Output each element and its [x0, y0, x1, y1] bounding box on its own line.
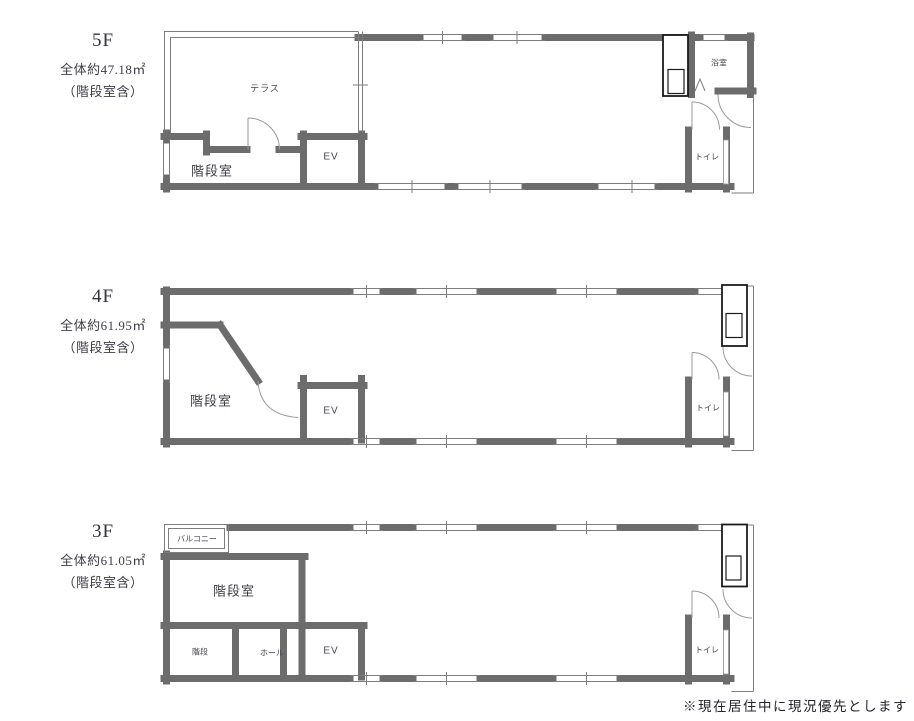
- floor-area-note-3f: （階段室含）: [36, 572, 170, 591]
- floor-info-5f: 5F 全体約47.18㎡ （階段室含）: [36, 30, 170, 100]
- toilet-door-panel-3f: [724, 630, 729, 674]
- floorplan-page: 5F 全体約47.18㎡ （階段室含） 4F 全体約61.95㎡ （階段室含） …: [0, 0, 914, 721]
- room-label-stairs-3f: 階段: [192, 647, 208, 658]
- room-label-stairwell-3f: 階段室: [213, 581, 255, 600]
- floorplan-4f: [164, 285, 754, 451]
- room-label-balcony-3f: バルコニー: [177, 534, 217, 545]
- equipment-unit-4f: [722, 285, 747, 346]
- floorplan-drawing: [0, 0, 914, 721]
- room-label-stairwell-5f: 階段室: [191, 161, 233, 180]
- room-label-toilet-5f: トイレ: [695, 152, 719, 163]
- floorplan-3f: [164, 521, 754, 692]
- equipment-unit-3f: [722, 525, 747, 587]
- room-label-elevator-5f: EV: [323, 152, 338, 163]
- room-label-elevator-4f: EV: [323, 406, 338, 417]
- floor-name-4f: 4F: [36, 286, 170, 308]
- floor-name-3f: 3F: [36, 521, 170, 543]
- floor-area-4f: 全体約61.95㎡: [36, 315, 170, 334]
- equipment-unit-5f: [663, 35, 688, 96]
- toilet-door-panel-4f: [724, 392, 729, 436]
- occupancy-note: ※現在居住中に現況優先とします: [683, 695, 908, 715]
- room-label-terrace-5f: テラス: [250, 82, 280, 95]
- room-label-elevator-3f: EV: [323, 646, 338, 657]
- room-label-stairwell-4f: 階段室: [190, 391, 232, 410]
- room-label-toilet-4f: トイレ: [696, 403, 720, 414]
- floor-area-note-5f: （階段室含）: [36, 81, 170, 100]
- floor-area-note-4f: （階段室含）: [36, 337, 170, 356]
- room-label-bathroom-5f: 浴室: [711, 58, 727, 69]
- floor-area-5f: 全体約47.18㎡: [36, 59, 170, 78]
- floor-info-3f: 3F 全体約61.05㎡ （階段室含）: [36, 521, 170, 591]
- toilet-door-panel-5f: [724, 140, 729, 184]
- floor-info-4f: 4F 全体約61.95㎡ （階段室含）: [36, 286, 170, 356]
- room-label-toilet-3f: トイレ: [695, 645, 719, 656]
- room-label-hall-3f: ホール: [260, 648, 284, 659]
- floor-name-5f: 5F: [36, 30, 170, 52]
- floorplan-5f: [164, 31, 754, 193]
- floor-area-3f: 全体約61.05㎡: [36, 550, 170, 569]
